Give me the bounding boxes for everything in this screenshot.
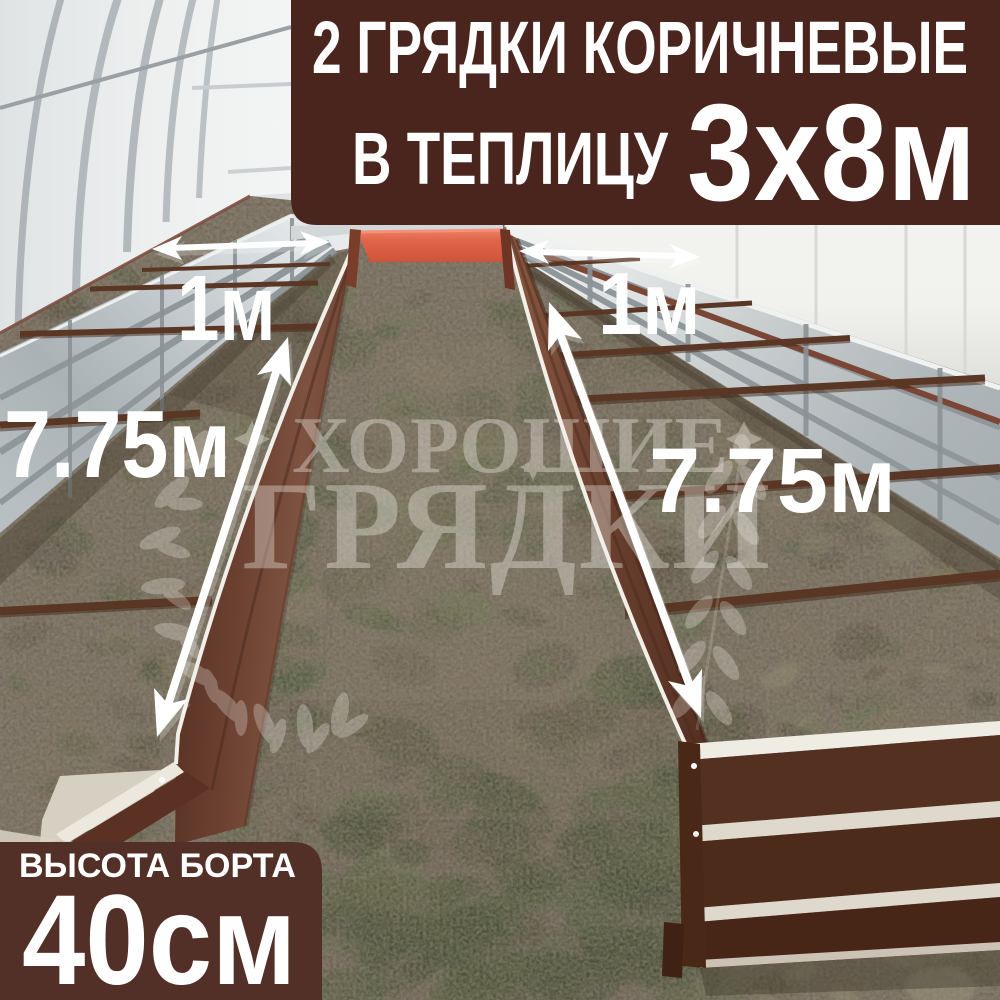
svg-text:1м: 1м [177,257,276,361]
svg-text:40см: 40см [22,868,296,1000]
svg-text:7.75м: 7.75м [4,391,231,498]
svg-text:3х8м: 3х8м [687,76,976,230]
svg-text:В ТЕПЛИЦУ: В ТЕПЛИЦУ [352,117,669,200]
svg-text:7.75м: 7.75м [649,430,896,532]
svg-text:1м: 1м [598,254,701,353]
